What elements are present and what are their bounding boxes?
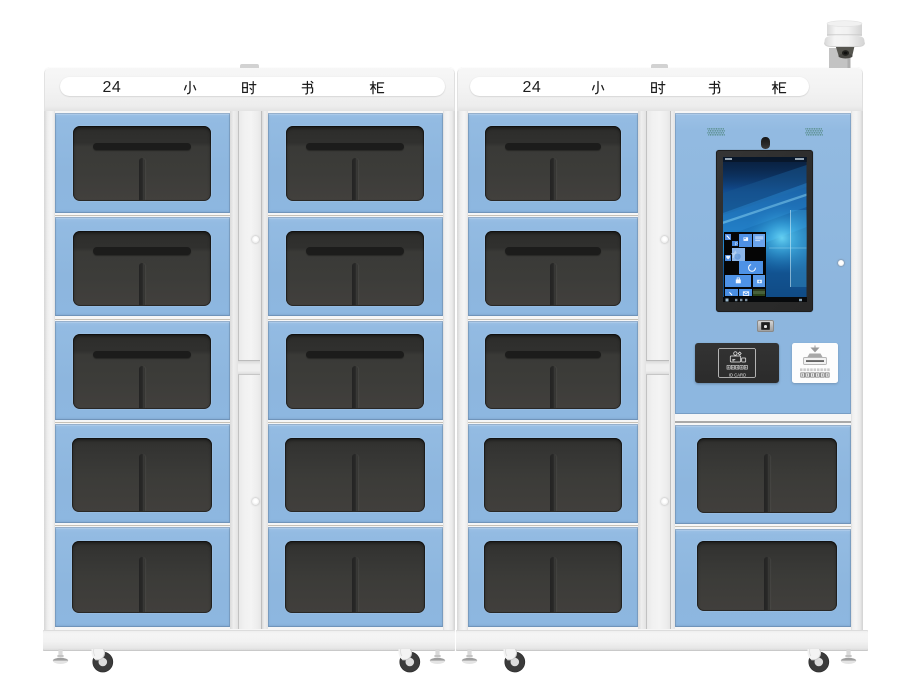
svg-text:ID CARD: ID CARD: [729, 373, 746, 378]
svg-text:P: P: [735, 241, 738, 246]
